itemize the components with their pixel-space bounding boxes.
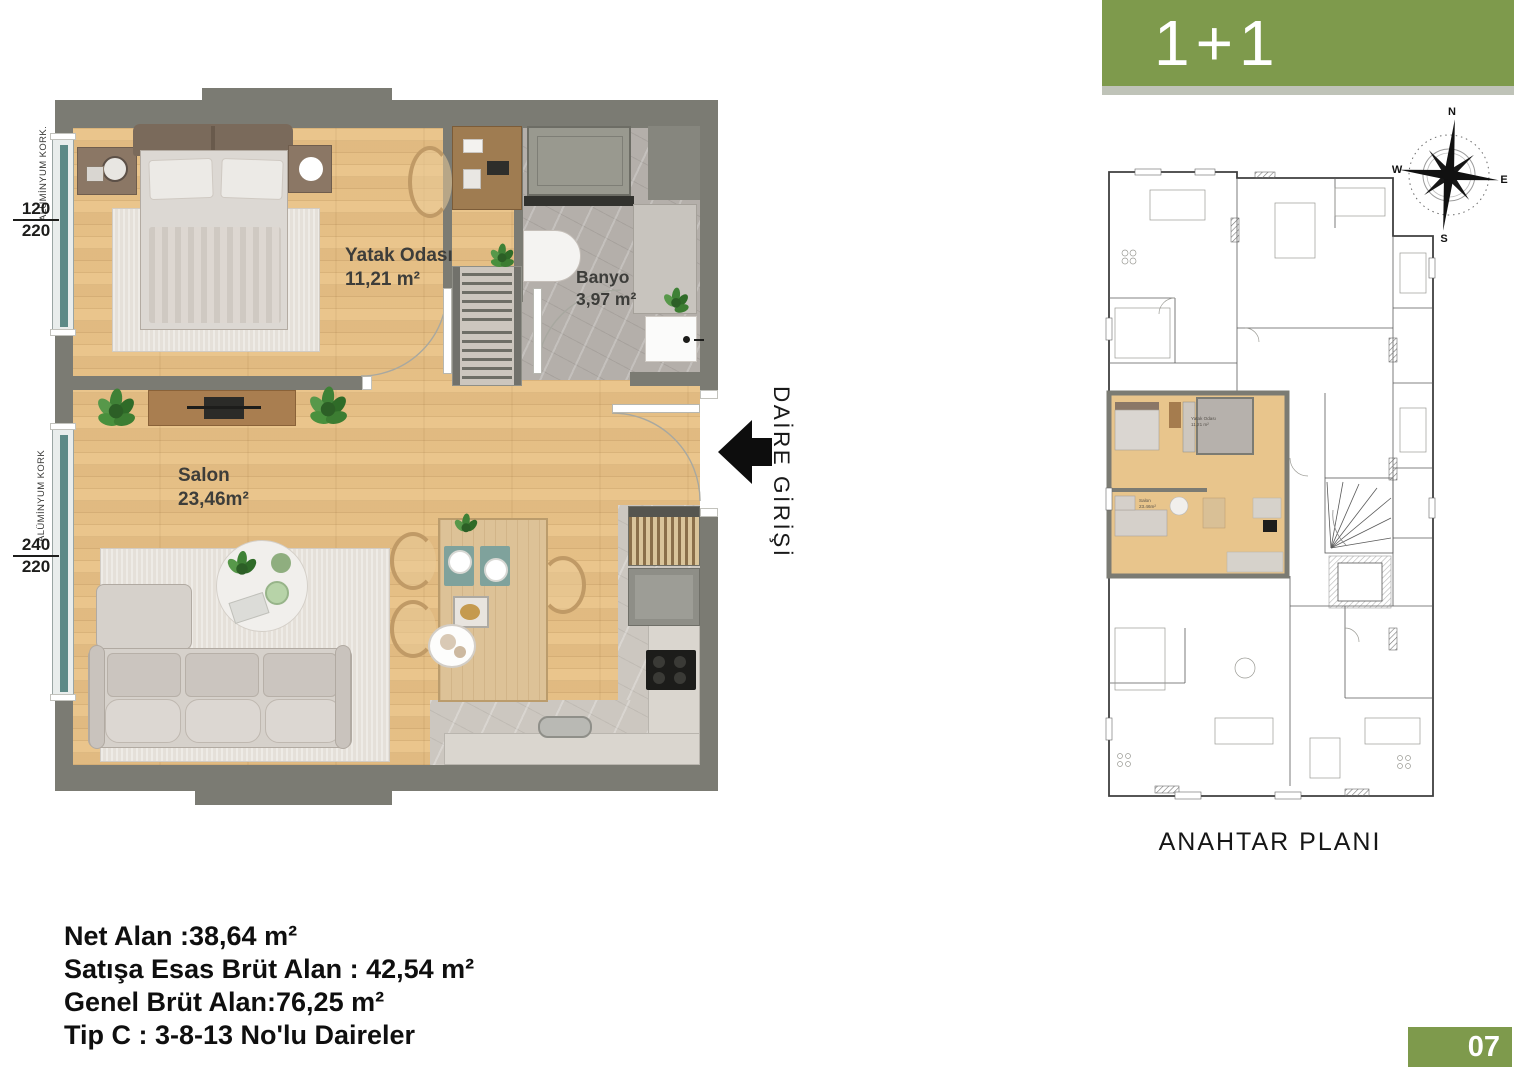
kitchen-sink: [538, 716, 592, 738]
fridge: [628, 568, 700, 626]
type-banner-label: 1+1: [1102, 0, 1514, 86]
window-2-material-label: ALÜMİNYUM KORK: [36, 452, 47, 542]
page-number-badge: 07: [1408, 1027, 1512, 1067]
compass-e: E: [1500, 174, 1507, 186]
compass-n: N: [1448, 106, 1456, 118]
room-name: Yatak Odası: [345, 244, 453, 268]
room-label-salon: Salon 23,46m²: [178, 464, 249, 512]
entrance-door-leaf: [612, 404, 700, 413]
key-plan-title: ANAHTAR PLANI: [1095, 828, 1445, 857]
dining-table: [438, 518, 548, 702]
cooktop: [646, 650, 696, 690]
keyplan-mini-salon-name: Salon: [1139, 498, 1151, 503]
room-label-banyo: Banyo 3,97 m²: [576, 266, 636, 310]
sofa-chaise: [96, 584, 192, 650]
window-2-width: 240: [22, 535, 50, 555]
window-1-height: 220: [13, 219, 59, 241]
info-tip: Tip C : 3-8-13 No'lu Daireler: [64, 1019, 474, 1052]
plant-left-icon: [92, 386, 140, 434]
info-net-alan: Net Alan :38,64 m²: [64, 920, 474, 953]
room-area: 23,46m²: [178, 488, 249, 512]
key-plan-elevator: [1329, 556, 1391, 608]
floor-plan-page: ALÜMİNYUM KORK. 120 220 ALÜMİNYUM KORK 2…: [0, 0, 1528, 1080]
room-name: Banyo: [576, 266, 636, 288]
info-genel-brut: Genel Brüt Alan:76,25 m²: [64, 986, 474, 1019]
page-number: 07: [1468, 1031, 1500, 1063]
key-plan-subject-unit: Yatak Odası 11,21 m² Salon 23.46m²: [1109, 393, 1287, 576]
dining-chair-1: [390, 532, 436, 590]
bathroom-door-leaf: [533, 288, 542, 374]
room-name: Salon: [178, 464, 249, 488]
room-label-yatak-odasi: Yatak Odası 11,21 m²: [345, 244, 453, 292]
room-area: 11,21 m²: [345, 268, 453, 292]
banner-shadow: [1102, 86, 1514, 95]
window-1-width: 120: [22, 199, 50, 219]
entrance-label: DAİRE GİRİŞİ: [768, 386, 794, 586]
window-2-size-label: 240 220: [13, 535, 59, 577]
info-satis-brut: Satışa Esas Brüt Alan : 42,54 m²: [64, 953, 474, 986]
keyplan-mini-yatak-area: 11,21 m²: [1191, 422, 1209, 427]
bedroom-door-leaf: [443, 288, 452, 374]
tv-console: [148, 390, 296, 426]
window-2-height: 220: [13, 555, 59, 577]
keyplan-mini-yatak-name: Yatak Odası: [1191, 416, 1216, 421]
window-1-size-label: 120 220: [13, 199, 59, 241]
coffee-table: [216, 540, 308, 632]
bread-basket: [453, 596, 489, 628]
entrance-arrow-icon: [714, 416, 776, 488]
key-plan: Yatak Odası 11,21 m² Salon 23.46m²: [1095, 158, 1445, 803]
entrance-frame-bottom: [700, 508, 718, 517]
table-plant-icon: [450, 512, 482, 542]
room-area: 3,97 m²: [576, 288, 636, 310]
type-banner: 1+1: [1102, 0, 1514, 86]
entrance-frame-top: [700, 390, 718, 399]
plant-right-icon: [304, 384, 352, 432]
side-tray-table: [428, 624, 476, 668]
keyplan-mini-salon-area: 23.46m²: [1139, 504, 1156, 509]
area-info-block: Net Alan :38,64 m² Satışa Esas Brüt Alan…: [64, 920, 474, 1052]
bookshelf: [628, 506, 700, 566]
sofa: [88, 648, 352, 748]
